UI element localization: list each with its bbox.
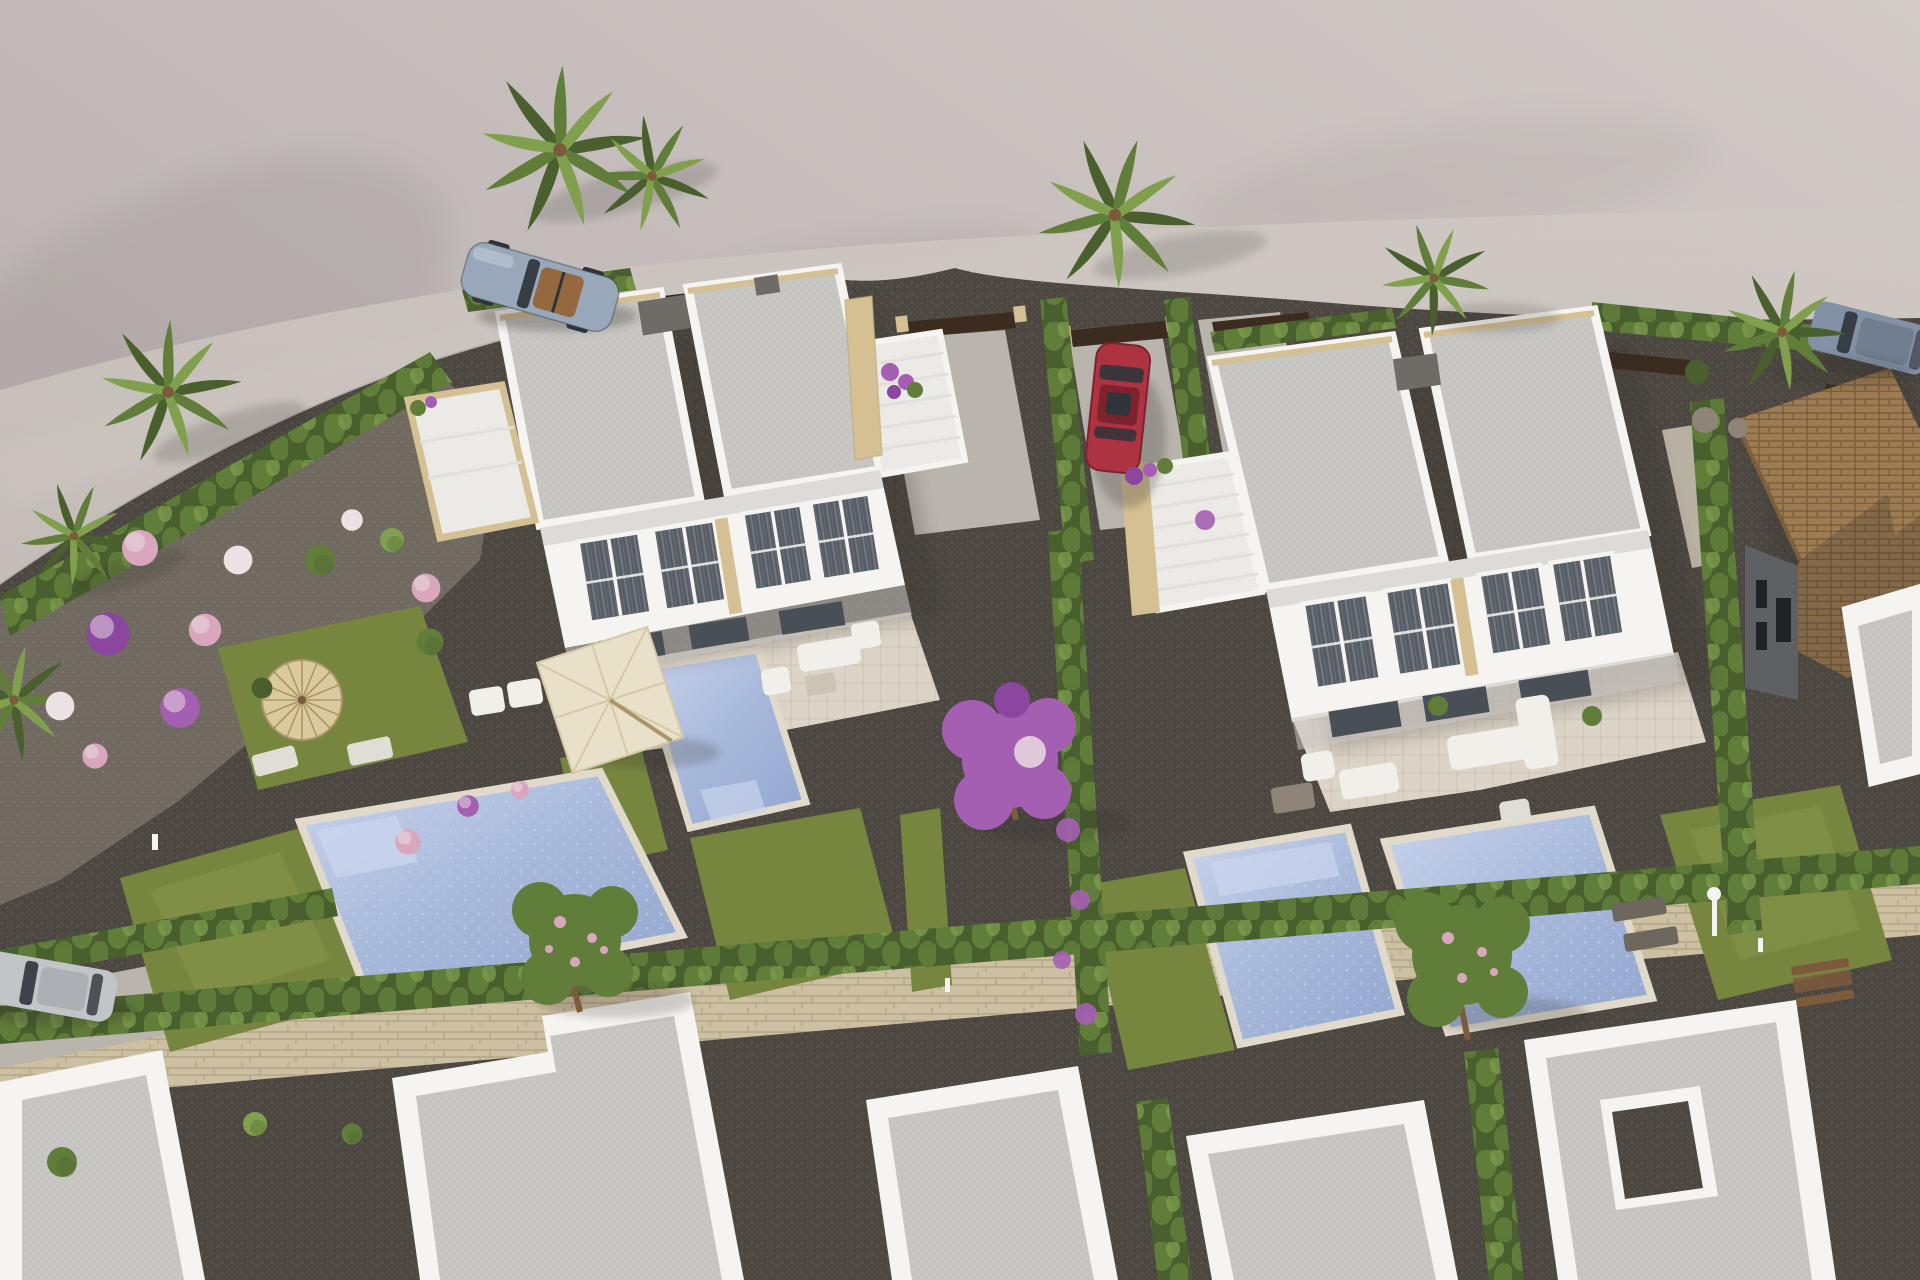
palm-shadow	[1432, 303, 1560, 333]
aerial-scene	[0, 0, 1920, 1280]
render-stage	[0, 0, 1920, 1280]
planter-bloom	[1125, 467, 1143, 485]
shrub	[305, 545, 335, 575]
flower-ball	[341, 509, 363, 531]
canopy	[954, 770, 1014, 830]
canopy	[942, 700, 1002, 760]
canopy	[521, 951, 575, 1005]
planter-green	[1157, 458, 1173, 474]
canopy	[583, 947, 633, 997]
stone-pillar	[895, 315, 909, 332]
climber-bloom	[1053, 951, 1071, 969]
canopy	[1017, 765, 1071, 819]
garden-lamp	[945, 978, 950, 992]
flower-ball	[511, 781, 529, 799]
flowerbed-bloom	[881, 363, 899, 381]
house-window	[1756, 580, 1767, 608]
outdoor-shower	[1712, 898, 1717, 936]
courtyard-floor	[1612, 1101, 1703, 1199]
facade-window	[1548, 551, 1627, 647]
armchair	[1300, 750, 1336, 783]
canopy	[512, 882, 568, 938]
canopy	[586, 886, 638, 938]
facade-window	[808, 491, 884, 582]
shrub	[342, 1124, 363, 1145]
armchair	[468, 686, 506, 717]
climber-bloom	[1195, 510, 1215, 530]
blossom	[600, 946, 608, 954]
blossom	[1477, 947, 1487, 957]
flowerbed-bloom	[887, 385, 901, 399]
climber-bloom	[1056, 818, 1080, 842]
shrub	[1685, 360, 1709, 384]
shower-head	[1707, 887, 1721, 901]
garden-lamp	[1758, 938, 1763, 952]
landscape-rock	[1728, 418, 1748, 438]
armchair	[506, 678, 544, 709]
flower-ball	[224, 546, 253, 575]
blossom	[545, 945, 553, 953]
canopy	[1476, 966, 1528, 1018]
house-window	[1776, 598, 1791, 642]
flower-ball	[82, 743, 107, 768]
rooftop-slab	[888, 1090, 1094, 1280]
blossom	[1490, 968, 1498, 976]
shrub	[252, 678, 273, 699]
canopy	[1474, 897, 1530, 953]
landscape-rock	[1692, 407, 1718, 433]
blossom	[587, 933, 597, 943]
bougainvillea-tree	[942, 682, 1076, 830]
flower-ball	[457, 795, 479, 817]
flower-ball	[122, 530, 158, 566]
planter-bloom	[425, 396, 437, 408]
garden-lamp	[152, 834, 158, 850]
car-sunroof	[1105, 392, 1131, 416]
pouf	[1498, 798, 1531, 824]
house-window	[1756, 622, 1767, 650]
flower-ball	[189, 614, 221, 646]
flower-ball	[86, 612, 129, 655]
parasol-pole	[298, 696, 306, 704]
shrub	[243, 1112, 267, 1136]
shrub	[380, 528, 404, 552]
potted-plant	[1428, 696, 1448, 716]
blossom	[1457, 973, 1467, 983]
straw-parasol	[262, 660, 342, 740]
blossom	[1442, 932, 1454, 944]
shrub	[417, 629, 444, 656]
shrub	[47, 1147, 77, 1177]
flower-ball	[412, 574, 441, 603]
facade-window	[1300, 591, 1384, 692]
potted-plant	[1582, 706, 1602, 726]
flowerbed-green	[907, 382, 923, 398]
climber-bloom	[1070, 890, 1090, 910]
blossom	[570, 957, 580, 967]
blossom-tree-left	[512, 882, 638, 1012]
facade-window	[740, 502, 816, 593]
canopy-highlight	[1014, 736, 1046, 768]
rooftop-ac-unit	[1393, 353, 1441, 391]
flower-ball	[160, 688, 200, 728]
armchair	[760, 666, 792, 696]
planter-bloom	[1143, 463, 1157, 477]
canopy	[1407, 969, 1465, 1027]
canopy	[994, 682, 1030, 718]
planter-green	[410, 400, 426, 416]
flower-ball	[395, 829, 420, 854]
palm-shadow	[1772, 356, 1912, 388]
stone-pillar	[1013, 305, 1027, 322]
flower-ball	[46, 692, 75, 721]
climber-bloom	[1075, 1003, 1097, 1025]
facade-window	[1476, 563, 1555, 659]
armchair	[850, 620, 882, 650]
blossom	[554, 916, 566, 928]
rooftop-ac-unit	[754, 274, 781, 296]
facade-window	[575, 530, 654, 626]
